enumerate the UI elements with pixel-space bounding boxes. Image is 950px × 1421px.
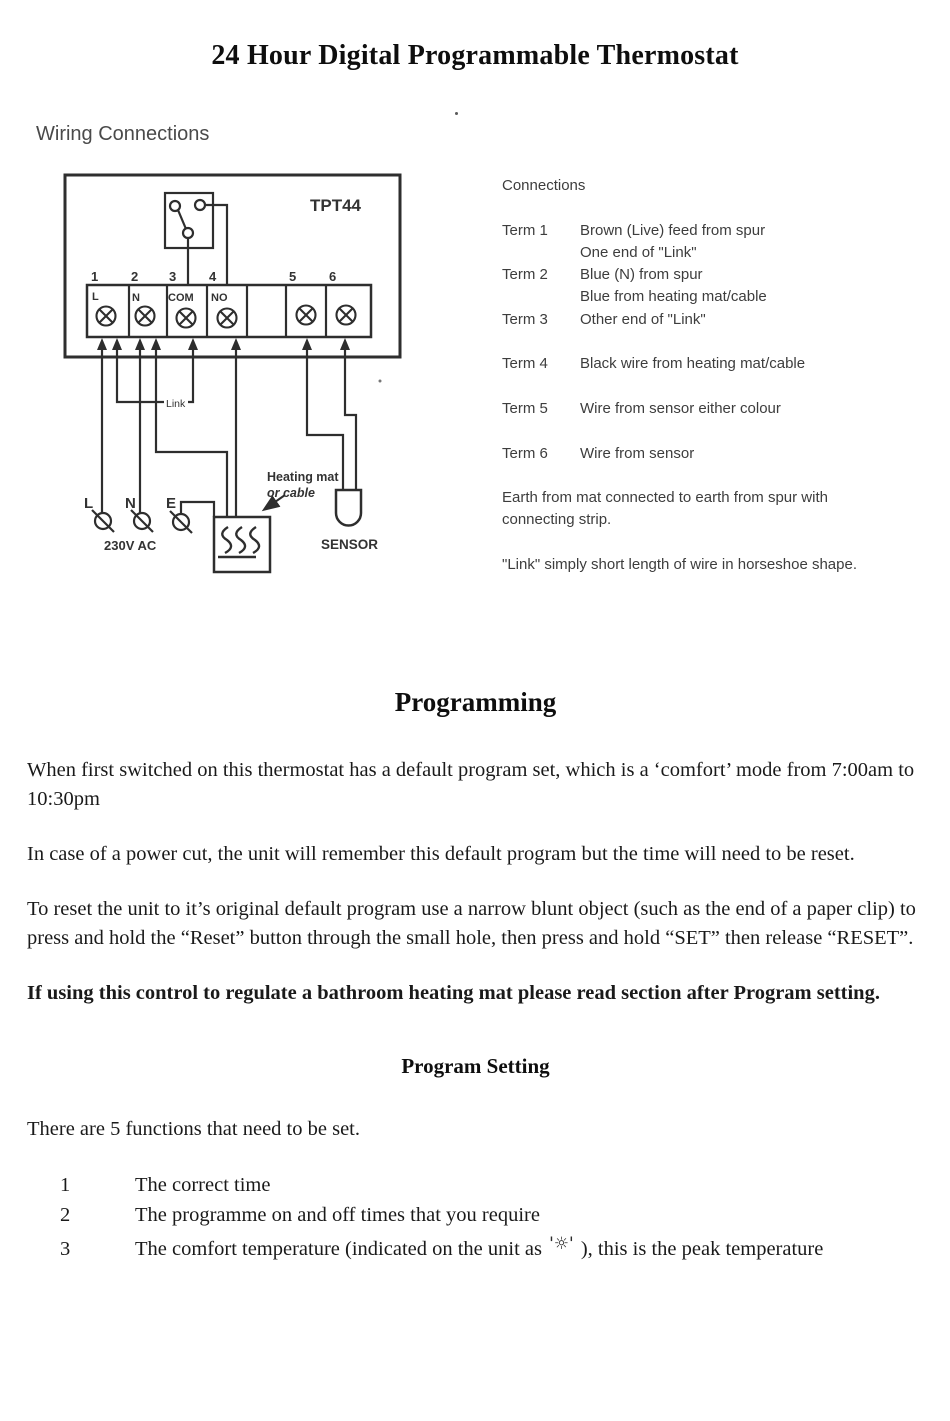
list-item-number: 3 bbox=[60, 1234, 135, 1265]
list-item-text: The comfort temperature (indicated on th… bbox=[135, 1234, 841, 1265]
wire-arrowheads bbox=[97, 338, 350, 350]
svg-text:N: N bbox=[125, 495, 136, 512]
sensor-wire-2 bbox=[345, 345, 356, 490]
wiring-section-title: Wiring Connections bbox=[36, 123, 209, 146]
term-label: Term 1 bbox=[502, 220, 580, 265]
term-desc: Wire from sensor either colour bbox=[580, 398, 932, 420]
list-item-text: The correct time bbox=[135, 1170, 841, 1200]
svg-text:E: E bbox=[166, 495, 176, 512]
page-title: 24 Hour Digital Programmable Thermostat bbox=[0, 40, 950, 72]
svg-text:4: 4 bbox=[209, 269, 217, 284]
svg-text:N: N bbox=[132, 292, 140, 304]
list-item: 2 The programme on and off times that yo… bbox=[27, 1200, 924, 1230]
voltage-label: 230V AC bbox=[104, 538, 157, 553]
supply-labels: L N E bbox=[84, 495, 176, 512]
term-row-5: Term 5 Wire from sensor either colour bbox=[502, 398, 932, 420]
svg-text:or cable: or cable bbox=[267, 486, 315, 500]
earth-note: Earth from mat connected to earth from s… bbox=[502, 487, 902, 532]
external-wires bbox=[102, 345, 356, 517]
term-desc: Black wire from heating mat/cable bbox=[580, 353, 932, 375]
term-row-6: Term 6 Wire from sensor bbox=[502, 443, 932, 465]
term-desc: Wire from sensor bbox=[580, 443, 932, 465]
wiring-diagram: TPT44 1 2 3 4 5 6 bbox=[30, 160, 470, 575]
link-wire-right bbox=[188, 345, 193, 402]
svg-text:1: 1 bbox=[91, 269, 98, 284]
term-label: Term 6 bbox=[502, 443, 580, 465]
svg-text:6: 6 bbox=[329, 269, 336, 284]
sensor-probe bbox=[336, 490, 361, 526]
paragraph-reset: To reset the unit to it’s original defau… bbox=[27, 895, 924, 953]
link-note: "Link" simply short length of wire in ho… bbox=[502, 554, 902, 576]
term-row-4: Term 4 Black wire from heating mat/cable bbox=[502, 353, 932, 375]
term-desc: Blue from heating mat/cable bbox=[580, 286, 932, 308]
term-label: Term 2 bbox=[502, 264, 580, 309]
list-item-text: The programme on and off times that you … bbox=[135, 1200, 841, 1230]
svg-text:3: 3 bbox=[169, 269, 176, 284]
list-item-number: 2 bbox=[60, 1200, 135, 1230]
list-item-number: 1 bbox=[60, 1170, 135, 1200]
connections-heading: Connections bbox=[502, 175, 932, 197]
term-row-3: Term 3 Other end of "Link" bbox=[502, 309, 932, 331]
term-desc: Other end of "Link" bbox=[580, 309, 932, 331]
programming-section: Programming When first switched on this … bbox=[27, 686, 924, 1265]
heating-mat-callout: Heating mat or cable bbox=[265, 470, 339, 509]
terminal-numbers: 1 2 3 4 5 6 bbox=[91, 269, 336, 284]
screw-terminals bbox=[97, 306, 356, 328]
list-item-text-pre: The comfort temperature (indicated on th… bbox=[135, 1238, 547, 1260]
term-row-1: Term 1 Brown (Live) feed from spur One e… bbox=[502, 220, 932, 265]
svg-text:2: 2 bbox=[131, 269, 138, 284]
comfort-sun-icon: '☼' bbox=[547, 1234, 576, 1254]
term-row-2: Term 2 Blue (N) from spur Blue from heat… bbox=[502, 264, 932, 309]
svg-text:COM: COM bbox=[168, 292, 194, 304]
term-desc: Brown (Live) feed from spur bbox=[580, 220, 932, 242]
svg-text:L: L bbox=[92, 291, 99, 303]
paragraph-power-cut: In case of a power cut, the unit will re… bbox=[27, 840, 924, 869]
paragraph-default-program: When first switched on this thermostat h… bbox=[27, 756, 924, 814]
list-item-text-post: ), this is the peak temperature bbox=[576, 1238, 824, 1260]
program-setting-heading: Program Setting bbox=[27, 1054, 924, 1079]
term-label: Term 4 bbox=[502, 353, 580, 375]
scan-speck bbox=[379, 380, 382, 383]
mat-blue-wire bbox=[156, 345, 227, 517]
bathroom-mat-note: If using this control to regulate a bath… bbox=[27, 979, 924, 1008]
model-label: TPT44 bbox=[310, 196, 362, 215]
scan-speck bbox=[455, 112, 458, 115]
svg-text:NO: NO bbox=[211, 292, 228, 304]
supply-terminations bbox=[92, 510, 192, 533]
sensor-label: SENSOR bbox=[321, 537, 378, 552]
programming-heading: Programming bbox=[27, 686, 924, 718]
term-label: Term 3 bbox=[502, 309, 580, 331]
term-desc: Blue (N) from spur bbox=[580, 264, 932, 286]
function-list: 1 The correct time 2 The programme on an… bbox=[27, 1170, 924, 1265]
svg-text:L: L bbox=[84, 495, 93, 512]
svg-text:Heating mat: Heating mat bbox=[267, 470, 339, 484]
connections-column: Connections Term 1 Brown (Live) feed fro… bbox=[502, 175, 932, 576]
sensor-wire-1 bbox=[307, 345, 343, 490]
manual-page: 24 Hour Digital Programmable Thermostat … bbox=[0, 0, 950, 1421]
list-item: 3 The comfort temperature (indicated on … bbox=[27, 1234, 924, 1265]
heating-mat-symbol bbox=[214, 517, 270, 572]
link-label: Link bbox=[166, 398, 186, 410]
term-desc: One end of "Link" bbox=[580, 242, 932, 264]
list-item: 1 The correct time bbox=[27, 1170, 924, 1200]
term-label: Term 5 bbox=[502, 398, 580, 420]
program-setting-intro: There are 5 functions that need to be se… bbox=[27, 1115, 924, 1144]
svg-text:5: 5 bbox=[289, 269, 296, 284]
